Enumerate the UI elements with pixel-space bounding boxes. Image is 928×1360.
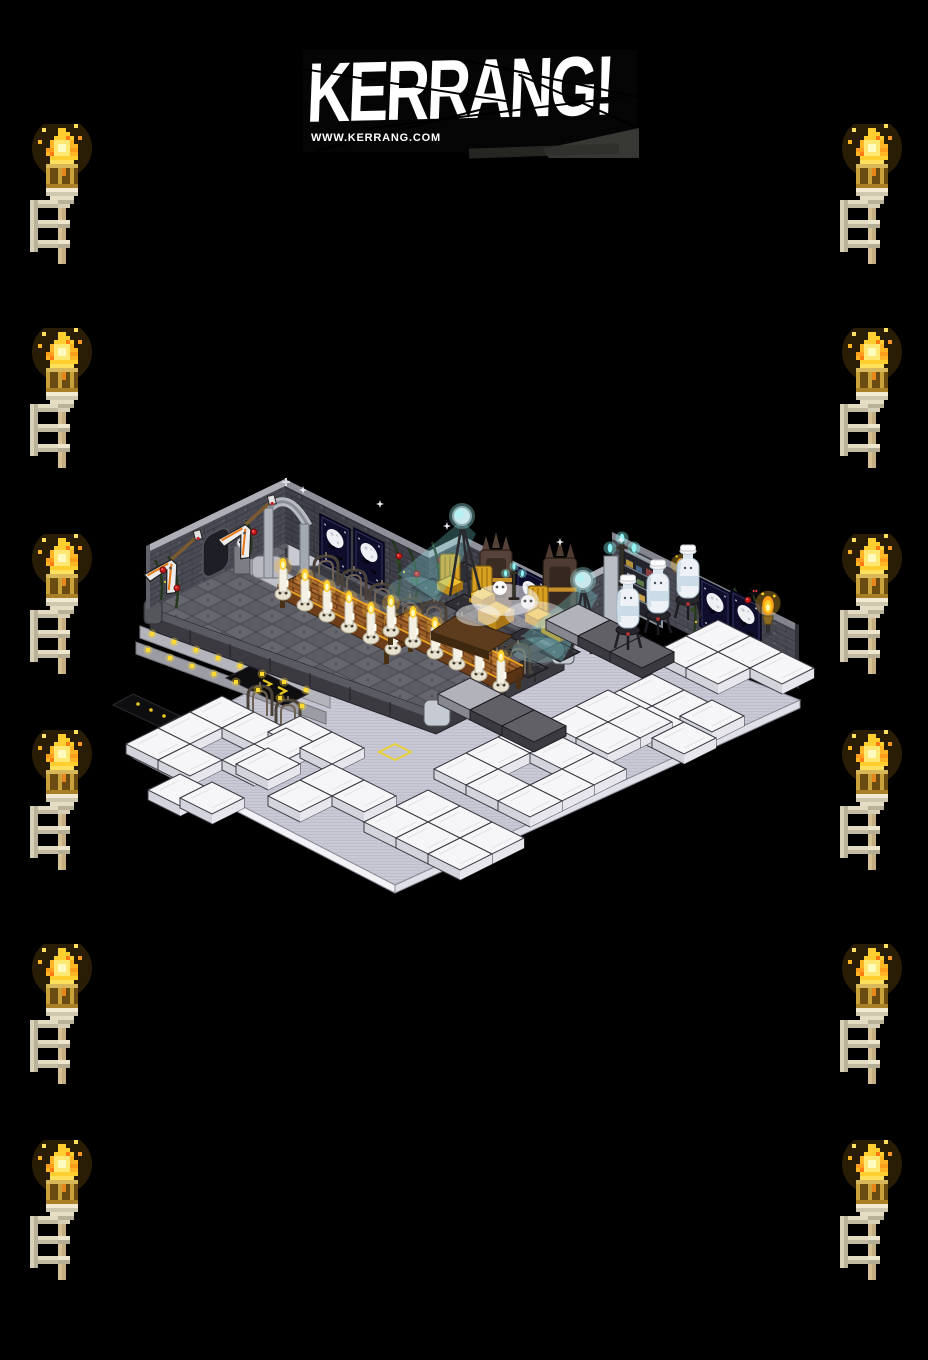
- wall-torch-icon: [30, 534, 94, 674]
- rose-vine-bloom: [174, 585, 180, 591]
- rose-vine-bloom: [160, 567, 166, 573]
- stage-edge-light: [236, 662, 245, 671]
- stage-edge-light: [188, 662, 197, 671]
- stage-edge-light: [254, 686, 263, 695]
- wall-torch-icon: [840, 730, 904, 870]
- stage-edge-light: [148, 630, 157, 639]
- stage-edge-light: [210, 670, 219, 679]
- stage-edge-light: [302, 686, 311, 695]
- wall-torch-icon: [30, 730, 94, 870]
- stage-edge-light: [232, 678, 241, 687]
- sparkle-glint: [556, 538, 564, 546]
- stage-edge-light: [298, 702, 307, 711]
- stage-edge-light: [166, 654, 175, 663]
- wall-torch-icon: [30, 124, 94, 264]
- rose-vine-bloom: [396, 553, 402, 559]
- sparkle-glint: [443, 522, 451, 530]
- wall-torch-icon: [840, 124, 904, 264]
- wall-torch-icon: [840, 328, 904, 468]
- wall-torch-icon: [30, 944, 94, 1084]
- wall-torch-icon: [30, 1140, 94, 1280]
- wall-torch-icon: [840, 944, 904, 1084]
- rose-vine-bloom: [251, 529, 257, 535]
- stage-edge-light: [192, 646, 201, 655]
- stage-edge-light: [144, 646, 153, 655]
- sparkle-glint: [376, 500, 384, 508]
- stage-edge-light: [280, 678, 289, 687]
- wall-torch-icon: [840, 1140, 904, 1280]
- stage-edge-light: [258, 670, 267, 679]
- stage-edge-light: [276, 694, 285, 703]
- wall-torch-icon: [30, 328, 94, 468]
- stage-edge-light: [214, 654, 223, 663]
- habbo-room-canvas[interactable]: [0, 0, 928, 1360]
- stage-edge-light: [170, 638, 179, 647]
- kerrang-habbo-screenshot: { "logo": { "title": "KERRANG!", "websit…: [0, 0, 928, 1360]
- wall-torch-icon: [840, 534, 904, 674]
